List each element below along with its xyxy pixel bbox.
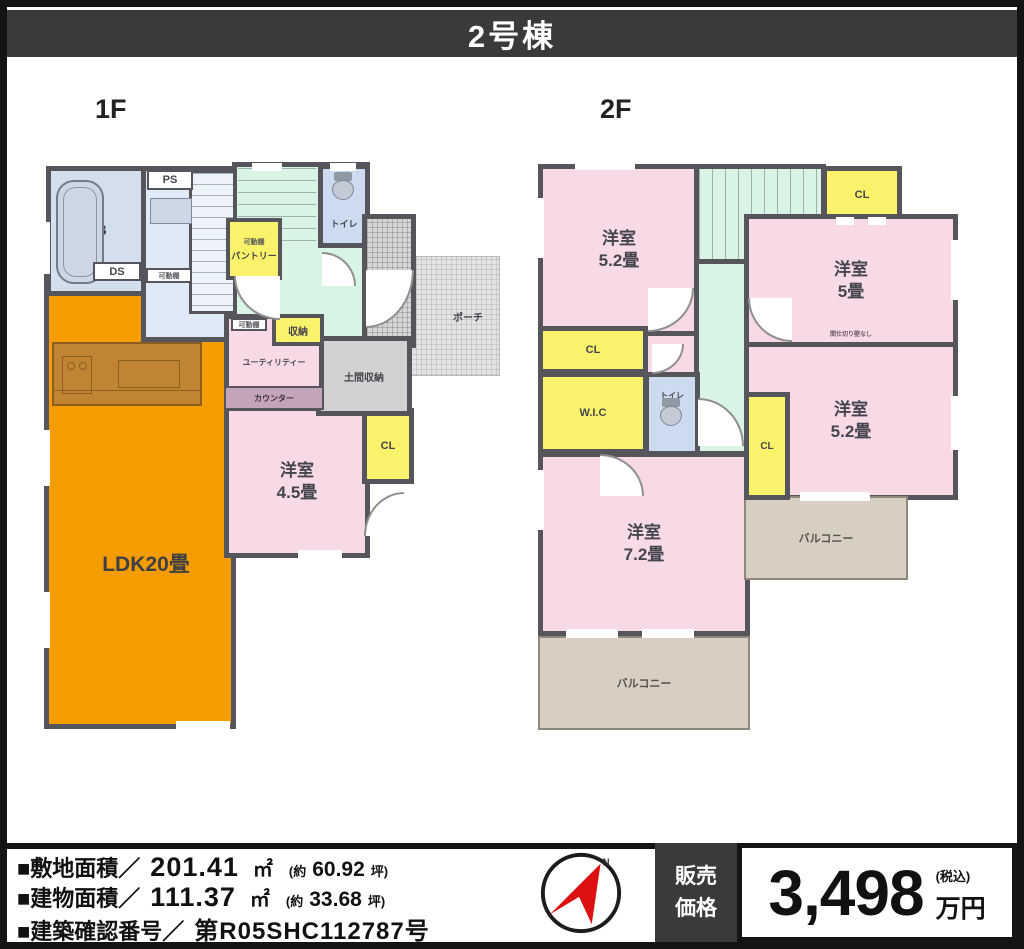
price-amount: 3,498 xyxy=(768,856,923,930)
walk-in-closet: W.I.C xyxy=(538,372,648,454)
site-area-value: 201.41 xyxy=(150,852,239,883)
burner-icon xyxy=(67,362,75,370)
site-area-row: ■敷地面積／ 201.41 ㎡ (約 60.92 坪) xyxy=(17,851,430,880)
compass-icon: N xyxy=(537,849,625,937)
property-info: ■敷地面積／ 201.41 ㎡ (約 60.92 坪) ■建物面積／ 111.3… xyxy=(17,851,430,940)
counter-edge xyxy=(54,390,200,391)
room-western-45: 洋室 4.5畳 xyxy=(224,406,370,558)
balcony-east-label: バルコニー xyxy=(799,530,854,546)
room-72sw-name: 洋室 xyxy=(627,523,661,543)
building-title-bar: 2号棟 xyxy=(7,10,1017,57)
building-area-unit: ㎡ xyxy=(250,883,270,912)
toilet-icon-2f xyxy=(660,398,682,432)
building-area-label: ■建物面積／ xyxy=(17,881,140,913)
site-area-unit: ㎡ xyxy=(253,853,273,882)
floor1-title: 1F xyxy=(95,94,127,125)
window xyxy=(642,629,694,638)
room45-door-arc xyxy=(364,492,404,536)
price-box: 3,498 (税込) 万円 xyxy=(737,843,1017,942)
closet-utility-label: 収納 xyxy=(288,323,308,338)
toilet-bowl xyxy=(660,406,682,426)
room-5ne-size: 5畳 xyxy=(838,282,864,302)
closet-2f-w-label: CL xyxy=(586,344,601,356)
duct-space-label: DS xyxy=(109,266,124,278)
building-area-row: ■建物面積／ 111.37 ㎡ (約 33.68 坪) xyxy=(17,881,430,910)
room-toilet-1f-label: トイレ xyxy=(330,217,357,230)
closet-1f-label: CL xyxy=(381,440,396,452)
room-72sw-size: 7.2畳 xyxy=(624,545,665,565)
room-pantry-label: パントリー xyxy=(231,249,276,262)
closet-2f-mid-label: CL xyxy=(760,441,773,452)
site-area-approx-close: 坪) xyxy=(371,861,388,880)
window xyxy=(951,240,960,300)
bathtub-inner xyxy=(63,187,97,277)
room-utility-label: ユーティリティー xyxy=(242,357,305,368)
building-title: 2号棟 xyxy=(468,11,556,56)
toilet-bowl xyxy=(332,180,354,200)
building-area-approx-value: 33.68 xyxy=(309,888,362,912)
window xyxy=(176,721,230,730)
burner-icon xyxy=(79,362,87,370)
shelf-box-utility: 可動棚 xyxy=(231,318,267,331)
balcony-east: バルコニー xyxy=(744,496,908,580)
window xyxy=(41,430,50,486)
window xyxy=(575,161,635,170)
price-heading-box: 販売価格 xyxy=(655,843,737,942)
site-area-label: ■敷地面積／ xyxy=(17,851,140,883)
price-heading: 販売価格 xyxy=(673,861,719,924)
toilet-icon-1f xyxy=(332,172,354,202)
site-area-approx-open: (約 xyxy=(289,861,306,880)
room-52se-name: 洋室 xyxy=(834,400,868,420)
price-tail: (税込) 万円 xyxy=(936,866,986,925)
room-doma-storage: 土間収納 xyxy=(316,336,412,416)
room-52nw-size: 5.2畳 xyxy=(599,251,640,271)
window xyxy=(566,629,618,638)
stove-icon xyxy=(62,356,92,394)
pipe-space-box: PS xyxy=(147,170,193,190)
closet-door-opening xyxy=(868,217,886,225)
room-western-45-name: 洋室 xyxy=(280,461,314,481)
balcony-south: バルコニー xyxy=(538,636,750,730)
room-western-45-size: 4.5畳 xyxy=(277,483,318,503)
window xyxy=(535,198,544,258)
site-area-approx-value: 60.92 xyxy=(312,858,365,882)
kitchen-counter-icon xyxy=(52,342,202,406)
window xyxy=(41,222,50,274)
porch-label: ポーチ xyxy=(453,309,483,324)
closet-door-opening xyxy=(836,217,854,225)
door-opening xyxy=(298,550,342,559)
room-ldk-label: LDK20畳 xyxy=(62,548,230,578)
walk-in-closet-label: W.I.C xyxy=(580,407,607,419)
confirmation-value: 第R05SHC112787号 xyxy=(194,911,429,946)
shelf-label: 可動棚 xyxy=(239,320,260,330)
closet-2f-w: CL xyxy=(538,326,648,374)
closet-2f-ne-label: CL xyxy=(855,189,870,201)
room-pantry: 可動棚 パントリー xyxy=(226,218,282,280)
window xyxy=(41,592,50,648)
sink-icon xyxy=(118,360,180,388)
window xyxy=(535,470,544,530)
flyer-page: 2号棟 1F LDK20畳 UB PS 可動棚 パントリー トイレ xyxy=(0,0,1024,949)
counter-label: カウンター xyxy=(254,393,294,404)
room-western-72-sw: 洋室 7.2畳 xyxy=(538,452,750,636)
building-area-approx-close: 坪) xyxy=(368,891,385,910)
duct-space-box: DS xyxy=(93,262,141,281)
price-tax-note: (税込) xyxy=(936,866,971,885)
compass-north-label: N xyxy=(603,858,610,869)
window xyxy=(800,492,870,501)
building-area-approx-open: (約 xyxy=(286,891,303,910)
confirmation-row: ■建築確認番号／ 第R05SHC112787号 xyxy=(17,911,430,940)
room-doma-storage-label: 土間収納 xyxy=(344,369,384,384)
vanity-icon xyxy=(150,198,192,224)
shelf-label: 可動棚 xyxy=(159,271,180,281)
pantry-shelf-label: 可動棚 xyxy=(244,237,265,247)
closet-1f: CL xyxy=(362,408,414,484)
window xyxy=(252,163,282,171)
room-52se-size: 5.2畳 xyxy=(831,422,872,442)
closet-2f-mid: CL xyxy=(744,392,790,500)
counter-band: カウンター xyxy=(224,386,324,410)
price-unit: 万円 xyxy=(936,889,986,925)
shelf-box-washroom: 可動棚 xyxy=(146,268,192,283)
confirmation-label: ■建築確認番号／ xyxy=(17,914,184,946)
window xyxy=(330,163,356,171)
room-5ne-name: 洋室 xyxy=(834,260,868,280)
floor2-title: 2F xyxy=(600,94,632,125)
pipe-space-label: PS xyxy=(163,174,178,186)
building-area-value: 111.37 xyxy=(150,882,236,913)
balcony-south-label: バルコニー xyxy=(617,675,672,691)
porch: ポーチ xyxy=(410,256,500,376)
window xyxy=(951,396,960,450)
room-52nw-name: 洋室 xyxy=(602,229,636,249)
